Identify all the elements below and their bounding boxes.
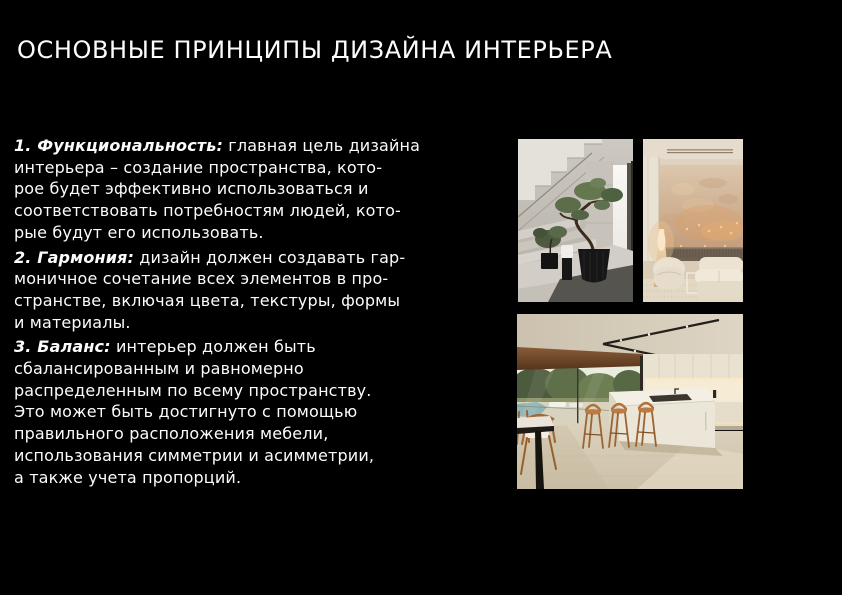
slide-title: ОСНОВНЫЕ ПРИНЦИПЫ ДИЗАЙНА ИНТЕРЬЕРА (17, 36, 612, 65)
photo-staircase-bonsai (518, 139, 633, 302)
principles-text: 1. Функциональность: главная цель дизайн… (14, 135, 506, 491)
kitchen-illustration (517, 314, 743, 489)
armchair (653, 257, 685, 289)
sofa (695, 257, 743, 298)
floor-lamp (561, 245, 573, 280)
principle-balance: 3. Баланс: интерьер должен быть сбаланси… (14, 336, 506, 488)
lounger (549, 402, 566, 407)
principle-functionality: 1. Функциональность: главная цель дизайн… (14, 135, 506, 244)
photo-minimalist-kitchen (517, 314, 743, 489)
principle-3-lead: 3. Баланс: (14, 337, 111, 356)
living-room-illustration (643, 139, 743, 302)
bottle (713, 390, 716, 398)
principle-3-body: интерьер должен быть сбалансированным и … (14, 337, 374, 486)
principle-2-lead: 2. Гармония: (14, 248, 134, 267)
presentation-slide: ОСНОВНЫЕ ПРИНЦИПЫ ДИЗАЙНА ИНТЕРЬЕРА 1. Ф… (0, 0, 842, 595)
principle-1-lead: 1. Функциональность: (14, 136, 223, 155)
ceiling (643, 139, 743, 159)
staircase-bonsai-illustration (518, 139, 633, 302)
photo-beige-living-room (643, 139, 743, 302)
black-planter (578, 249, 610, 283)
principle-harmony: 2. Гармония: дизайн должен создавать гар… (14, 247, 506, 334)
